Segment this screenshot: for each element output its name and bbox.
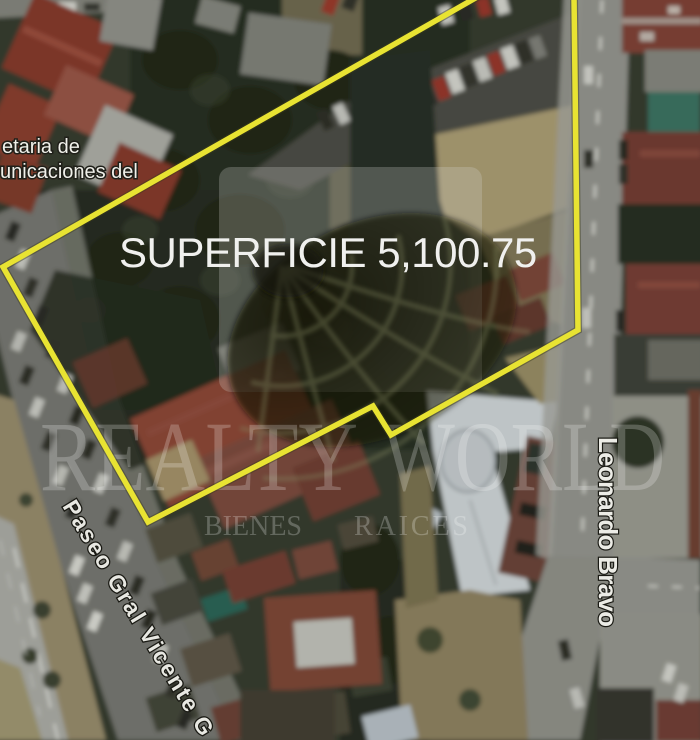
- svg-text:Leonardo Bravo: Leonardo Bravo: [593, 437, 623, 627]
- svg-text:BIENES: BIENES: [204, 511, 302, 542]
- svg-text:etaria de: etaria de: [2, 136, 80, 158]
- svg-text:unicaciones del: unicaciones del: [0, 161, 138, 183]
- svg-text:SUPERFICIE 5,100.75: SUPERFICIE 5,100.75: [119, 229, 537, 276]
